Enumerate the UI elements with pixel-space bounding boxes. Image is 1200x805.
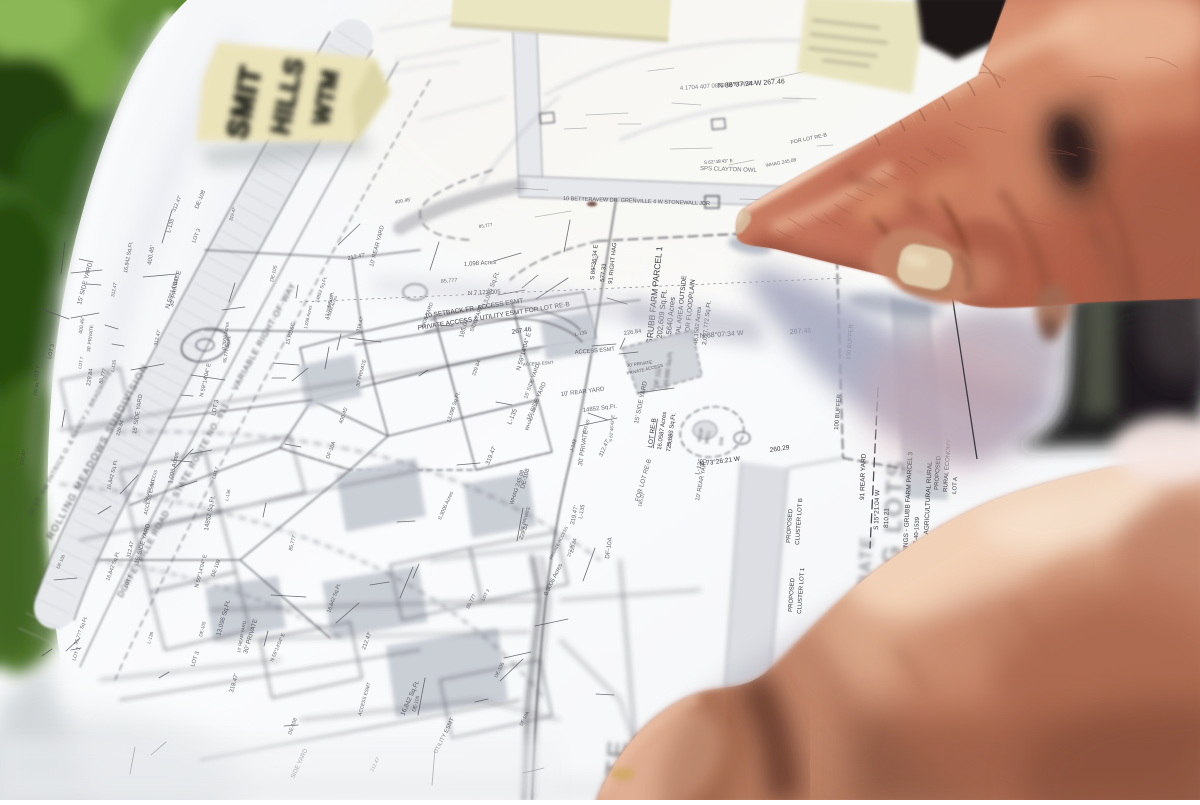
svg-text:LOT A: LOT A: [952, 477, 959, 494]
